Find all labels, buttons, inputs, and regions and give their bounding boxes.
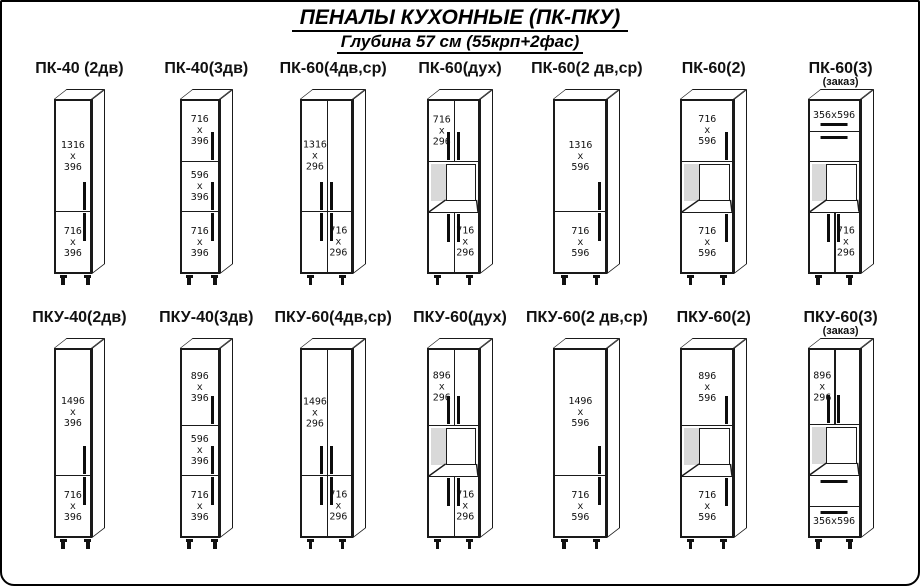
cabinet-title: ПКУ-60(2 дв,ср): [526, 309, 648, 327]
cabinet-title: ПКУ-60(дух): [413, 309, 507, 327]
cabinet-door: 716 х 396: [182, 211, 218, 272]
cabinet-title: ПК-60(2): [682, 60, 746, 78]
cabinet-titlebox: ПК-60(2 дв,ср): [531, 60, 643, 86]
cabinet-side-face: [220, 338, 233, 538]
cabinet-column: ПК-60(дух)716 х 296716 х 296: [397, 60, 524, 285]
dimension-label: 716 х 396: [64, 490, 82, 523]
dimension-label: 896 х 296: [429, 371, 454, 404]
cabinet-title: ПК-60(2 дв,ср): [531, 60, 643, 78]
door-handle: [837, 214, 840, 242]
cabinet-foot: [84, 539, 92, 549]
cabinet-foot: [687, 539, 695, 549]
door-handle: [598, 477, 601, 505]
door-handle: [598, 213, 601, 241]
dimension-label: 716 х 396: [191, 490, 209, 523]
dimension-label: 716 х 396: [191, 114, 209, 147]
cabinet-foot: [307, 539, 315, 549]
door-handle: [725, 478, 728, 506]
cabinet-feet: [427, 538, 493, 549]
cabinet-front: 716 х 596716 х 596: [680, 99, 734, 274]
drawer-handle: [821, 123, 848, 126]
cabinet-3d: 716 х 596716 х 596: [680, 99, 734, 274]
cabinet-title: ПКУ-40(2дв): [32, 309, 126, 327]
cabinet-titlebox: ПК-60(дух): [418, 60, 501, 86]
cabinet-door: 1316 х 396: [56, 101, 90, 211]
cabinet-niche: [682, 425, 732, 476]
cabinet-figure: 1316 х 596716 х 596: [553, 99, 620, 274]
cabinet-column: ПК-60(4дв,ср)1316 х 296716 х 296: [270, 60, 397, 285]
door-handle: [330, 477, 333, 505]
dimension-label: 1316 х 296: [302, 140, 327, 173]
dimension-label: 1496 х 596: [568, 396, 592, 429]
cabinet-titlebox: ПКУ-60(4дв,ср): [274, 309, 391, 335]
drawer-handle: [821, 136, 848, 139]
cabinet-foot: [434, 275, 442, 285]
door-handle: [211, 182, 214, 210]
cabinet-column: ПК-60(2)716 х 596716 х 596: [650, 60, 777, 285]
door-handle: [211, 396, 214, 424]
cabinet-foot: [592, 539, 600, 549]
cabinet-figure: 1496 х 396716 х 396: [54, 348, 105, 538]
cabinet-drawer: [810, 475, 859, 506]
door-handle: [83, 213, 86, 241]
niche-depth-lines: [810, 162, 859, 212]
cabinet-side-face: [92, 89, 105, 274]
cabinet-3d: 896 х 396596 х 396716 х 396: [180, 348, 220, 538]
dimension-label: 716 х 596: [698, 490, 716, 523]
cabinet-column: ПК-40(3дв)716 х 396596 х 396716 х 396: [143, 60, 270, 285]
dimension-label: 716 х 296: [429, 114, 454, 147]
door-handle: [83, 446, 86, 474]
cabinet-door: 1496 х 396: [56, 350, 90, 475]
page-subtitle: Глубина 57 см (55крп+2фас): [337, 32, 584, 54]
cabinet-foot: [59, 275, 67, 285]
cabinet-front: 896 х 296356х596: [808, 348, 861, 538]
cabinet-door: 716 х 596: [555, 475, 605, 536]
door-handle: [330, 446, 333, 474]
cabinet-side-face: [861, 89, 874, 274]
cabinet-side-face: [92, 338, 105, 538]
cabinet-column: ПКУ-60(2)896 х 596716 х 596: [650, 309, 777, 549]
cabinet-feet: [680, 538, 747, 549]
cabinet-niche: [429, 161, 478, 212]
cabinet-figure: 716 х 396596 х 396716 х 396: [180, 99, 233, 274]
cabinet-door: 716 х 396: [182, 101, 218, 161]
cabinet-column: ПКУ-60(2 дв,ср)1496 х 596716 х 596: [523, 309, 650, 549]
cabinet-double: 716 х 296: [302, 211, 351, 272]
cabinet-door: 1316 х 596: [555, 101, 605, 211]
dimension-label: 716 х 396: [191, 226, 209, 259]
cabinet-foot: [560, 539, 568, 549]
cabinet-feet: [553, 538, 620, 549]
cabinet-door: 596 х 396: [182, 161, 218, 212]
cabinet-feet: [300, 274, 366, 285]
niche-depth-lines: [682, 162, 732, 212]
cabinet-feet: [180, 538, 233, 549]
cabinet-front: 1496 х 396716 х 396: [54, 348, 92, 538]
door-handle: [725, 132, 728, 160]
dimension-label: 896 х 596: [698, 371, 716, 404]
door-handle: [598, 446, 601, 474]
cabinet-row-1: ПК-40 (2дв)1316 х 396716 х 396ПК-40(3дв)…: [2, 60, 918, 285]
cabinet-figure: 896 х 596716 х 596: [680, 348, 747, 538]
cabinet-foot: [560, 275, 568, 285]
page-title: ПЕНАЛЫ КУХОННЫЕ (ПК-ПКУ): [292, 6, 629, 32]
cabinet-front: 1496 х 596716 х 596: [553, 348, 607, 538]
cabinet-drawer: 356х596: [810, 506, 859, 537]
cabinet-side-face: [607, 338, 620, 538]
cabinet-column: ПКУ-40(2дв)1496 х 396716 х 396: [16, 309, 143, 549]
cabinet-3d: 1316 х 596716 х 596: [553, 99, 607, 274]
cabinet-front: 896 х 296716 х 296: [427, 348, 480, 538]
cabinet-title: ПК-40 (2дв): [35, 60, 123, 78]
door-handle: [320, 182, 323, 210]
cabinet-column: ПКУ-40(3дв)896 х 396596 х 396716 х 396: [143, 309, 270, 549]
cabinet-double: 716 х 296: [429, 476, 478, 537]
cabinet-column: ПКУ-60(4дв,ср)1496 х 296716 х 296: [270, 309, 397, 549]
cabinet-foot: [592, 275, 600, 285]
cabinet-foot: [211, 539, 219, 549]
cabinet-titlebox: ПК-60(2): [682, 60, 746, 86]
cabinet-double: 716 х 296: [810, 212, 859, 272]
dimension-label: 1316 х 396: [61, 140, 85, 173]
door-handle: [447, 214, 450, 242]
door-handle: [83, 182, 86, 210]
dimension-label: 356х596: [813, 110, 855, 121]
cabinet-foot: [814, 275, 822, 285]
cabinet-niche: [810, 424, 859, 475]
niche-depth-lines: [810, 425, 859, 475]
cabinet-feet: [680, 274, 747, 285]
cabinet-double: 896 х 296: [810, 350, 859, 424]
cabinet-feet: [808, 538, 874, 549]
cabinet-titlebox: ПК-40 (2дв): [35, 60, 123, 86]
cabinet-foot: [307, 275, 315, 285]
cabinet-3d: 1496 х 596716 х 596: [553, 348, 607, 538]
cabinet-figure: 1496 х 296716 х 296: [300, 348, 366, 538]
cabinet-feet: [553, 274, 620, 285]
cabinet-door: 716 х 396: [182, 475, 218, 536]
cabinet-3d: 896 х 296356х596: [808, 348, 861, 538]
cabinet-titlebox: ПК-60(4дв,ср): [280, 60, 387, 86]
dimension-label: 596 х 396: [191, 170, 209, 203]
cabinet-side-face: [861, 338, 874, 538]
cabinet-side-face: [353, 338, 366, 538]
cabinet-double: 716 х 296: [429, 212, 478, 273]
cabinet-drawer: [810, 131, 859, 161]
cabinet-titlebox: ПК-60(3)(заказ): [809, 60, 873, 86]
cabinet-foot: [465, 539, 473, 549]
cabinet-front: 896 х 396596 х 396716 х 396: [180, 348, 220, 538]
cabinet-title: ПК-40(3дв): [164, 60, 248, 78]
cabinet-front: 716 х 396596 х 396716 х 396: [180, 99, 220, 274]
cabinet-column: ПК-60(3)(заказ)356х596716 х 296: [777, 60, 904, 285]
cabinet-side-face: [353, 89, 366, 274]
cabinet-3d: 1316 х 396716 х 396: [54, 99, 92, 274]
cabinet-foot: [338, 275, 346, 285]
cabinet-title: ПКУ-40(3дв): [159, 309, 253, 327]
door-handle: [330, 213, 333, 241]
cabinet-feet: [54, 274, 105, 285]
cabinet-foot: [465, 275, 473, 285]
cabinet-title: ПК-60(4дв,ср): [280, 60, 387, 78]
cabinet-foot: [814, 539, 822, 549]
door-handle: [837, 395, 840, 423]
door-handle: [211, 213, 214, 241]
cabinet-figure: 896 х 296356х596: [808, 348, 874, 538]
cabinet-titlebox: ПК-40(3дв): [164, 60, 248, 86]
cabinet-column: ПКУ-60(дух)896 х 296716 х 296: [397, 309, 524, 549]
cabinet-double: 896 х 296: [429, 350, 478, 425]
cabinet-door: 716 х 596: [682, 476, 732, 537]
niche-depth-lines: [429, 162, 478, 212]
cabinet-foot: [338, 539, 346, 549]
cabinet-front: 1316 х 396716 х 396: [54, 99, 92, 274]
cabinet-3d: 1316 х 296716 х 296: [300, 99, 353, 274]
cabinet-3d: 896 х 596716 х 596: [680, 348, 734, 538]
cabinet-front: 356х596716 х 296: [808, 99, 861, 274]
cabinet-foot: [84, 275, 92, 285]
dimension-label: 716 х 596: [571, 490, 589, 523]
dimension-label: 896 х 296: [810, 371, 835, 404]
dimension-label: 1316 х 596: [568, 140, 592, 173]
drawer-handle: [821, 480, 848, 483]
dimension-label: 356х596: [813, 516, 855, 527]
dimension-label: 716 х 596: [698, 226, 716, 259]
cabinet-title: ПКУ-60(2): [677, 309, 751, 327]
subtitle-wrap: Глубина 57 см (55крп+2фас): [2, 32, 918, 54]
cabinet-door: 716 х 396: [56, 475, 90, 536]
cabinet-foot: [59, 539, 67, 549]
cabinet-feet: [300, 538, 366, 549]
cabinet-figure: 896 х 396596 х 396716 х 396: [180, 348, 233, 538]
door-handle: [320, 446, 323, 474]
cabinet-figure: 716 х 596716 х 596: [680, 99, 747, 274]
cabinet-door: 896 х 596: [682, 350, 732, 425]
cabinet-title: ПКУ-60(4дв,ср): [274, 309, 391, 327]
cabinet-3d: 716 х 296716 х 296: [427, 99, 480, 274]
door-handle: [447, 132, 450, 160]
cabinet-column: ПК-60(2 дв,ср)1316 х 596716 х 596: [523, 60, 650, 285]
cabinet-front: 1316 х 296716 х 296: [300, 99, 353, 274]
door-handle: [447, 478, 450, 506]
cabinet-foot: [846, 539, 854, 549]
cabinet-foot: [434, 539, 442, 549]
cabinet-foot: [719, 539, 727, 549]
cabinet-figure: 1316 х 396716 х 396: [54, 99, 105, 274]
dimension-label: 896 х 396: [191, 371, 209, 404]
cabinet-door: 596 х 396: [182, 425, 218, 476]
cabinet-side-face: [480, 89, 493, 274]
dimension-label: 716 х 596: [571, 226, 589, 259]
cabinet-door: 716 х 596: [555, 211, 605, 272]
cabinet-title: ПК-60(дух): [418, 60, 501, 78]
cabinet-door: 716 х 596: [682, 101, 732, 161]
cabinet-side-face: [220, 89, 233, 274]
catalog-sheet: ПЕНАЛЫ КУХОННЫЕ (ПК-ПКУ) Глубина 57 см (…: [0, 0, 920, 586]
cabinet-foot: [846, 275, 854, 285]
cabinet-foot: [211, 275, 219, 285]
cabinet-niche: [810, 161, 859, 212]
cabinet-feet: [180, 274, 233, 285]
cabinet-side-face: [734, 338, 747, 538]
cabinet-column: ПКУ-60(3)(заказ)896 х 296356х596: [777, 309, 904, 549]
dimension-label: 716 х 596: [698, 114, 716, 147]
cabinet-double: 1496 х 296: [302, 350, 351, 475]
door-handle: [211, 132, 214, 160]
door-handle: [827, 214, 830, 242]
cabinet-3d: 1496 х 296716 х 296: [300, 348, 353, 538]
cabinet-side-face: [734, 89, 747, 274]
cabinet-titlebox: ПКУ-40(2дв): [32, 309, 126, 335]
cabinet-figure: 356х596716 х 296: [808, 99, 874, 274]
cabinet-double: 716 х 296: [429, 101, 478, 161]
door-handle: [320, 477, 323, 505]
door-handle: [725, 396, 728, 424]
cabinet-3d: 1496 х 396716 х 396: [54, 348, 92, 538]
cabinet-3d: 896 х 296716 х 296: [427, 348, 480, 538]
cabinet-door: 1496 х 596: [555, 350, 605, 475]
door-handle: [211, 446, 214, 474]
door-handle: [725, 214, 728, 242]
door-handle: [457, 132, 460, 160]
cabinet-3d: 716 х 396596 х 396716 х 396: [180, 99, 220, 274]
cabinet-door: 716 х 396: [56, 211, 90, 272]
door-handle: [457, 214, 460, 242]
door-handle: [83, 477, 86, 505]
door-handle: [330, 182, 333, 210]
cabinet-double: 716 х 296: [302, 475, 351, 536]
niche-depth-lines: [429, 426, 478, 476]
cabinet-side-face: [480, 338, 493, 538]
door-handle: [211, 477, 214, 505]
door-handle: [827, 395, 830, 423]
cabinet-double: 1316 х 296: [302, 101, 351, 211]
header: ПЕНАЛЫ КУХОННЫЕ (ПК-ПКУ): [2, 2, 918, 32]
door-handle: [447, 396, 450, 424]
cabinet-column: ПК-40 (2дв)1316 х 396716 х 396: [16, 60, 143, 285]
cabinet-feet: [427, 274, 493, 285]
cabinet-rows: ПК-40 (2дв)1316 х 396716 х 396ПК-40(3дв)…: [2, 60, 918, 549]
dimension-label: 596 х 396: [191, 434, 209, 467]
door-handle: [457, 478, 460, 506]
cabinet-front: 896 х 596716 х 596: [680, 348, 734, 538]
dimension-label: 716 х 396: [64, 226, 82, 259]
cabinet-figure: 1496 х 596716 х 596: [553, 348, 620, 538]
cabinet-titlebox: ПКУ-60(2 дв,ср): [526, 309, 648, 335]
cabinet-figure: 1316 х 296716 х 296: [300, 99, 366, 274]
cabinet-niche: [429, 425, 478, 476]
dimension-label: 1496 х 396: [61, 396, 85, 429]
cabinet-feet: [54, 538, 105, 549]
drawer-handle: [821, 511, 848, 514]
cabinet-foot: [719, 275, 727, 285]
cabinet-foot: [687, 275, 695, 285]
cabinet-foot: [185, 539, 193, 549]
cabinet-titlebox: ПКУ-60(дух): [413, 309, 507, 335]
cabinet-figure: 716 х 296716 х 296: [427, 99, 493, 274]
cabinet-niche: [682, 161, 732, 212]
cabinet-3d: 356х596716 х 296: [808, 99, 861, 274]
cabinet-foot: [185, 275, 193, 285]
cabinet-door: 896 х 396: [182, 350, 218, 425]
cabinet-door: 716 х 596: [682, 212, 732, 273]
cabinet-side-face: [607, 89, 620, 274]
dimension-label: 1496 х 296: [302, 396, 327, 429]
cabinet-front: 1496 х 296716 х 296: [300, 348, 353, 538]
cabinet-titlebox: ПКУ-60(2): [677, 309, 751, 335]
door-handle: [457, 396, 460, 424]
door-handle: [598, 182, 601, 210]
cabinet-figure: 896 х 296716 х 296: [427, 348, 493, 538]
cabinet-drawer: 356х596: [810, 101, 859, 130]
cabinet-titlebox: ПКУ-40(3дв): [159, 309, 253, 335]
cabinet-front: 1316 х 596716 х 596: [553, 99, 607, 274]
cabinet-row-2: ПКУ-40(2дв)1496 х 396716 х 396ПКУ-40(3дв…: [2, 309, 918, 549]
door-handle: [320, 213, 323, 241]
cabinet-feet: [808, 274, 874, 285]
cabinet-front: 716 х 296716 х 296: [427, 99, 480, 274]
cabinet-titlebox: ПКУ-60(3)(заказ): [803, 309, 877, 335]
niche-depth-lines: [682, 426, 732, 476]
